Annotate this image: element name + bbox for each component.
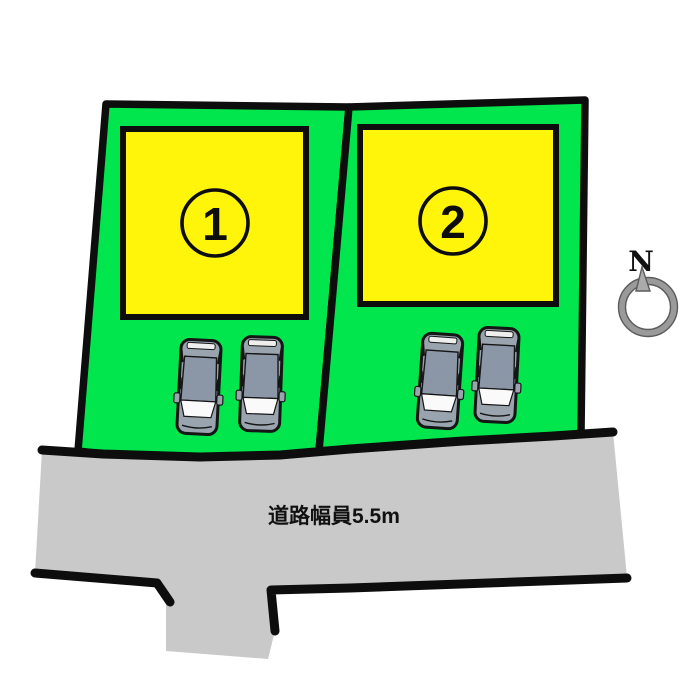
parcel-1-number: 1 (202, 198, 228, 250)
road-bottom-right-edge (271, 578, 627, 631)
site-plan-drawing: 1 2 道路幅員5.5m N (0, 0, 700, 700)
north-compass-icon: N (619, 245, 678, 337)
car-icon (470, 327, 524, 423)
car-icon (235, 336, 287, 432)
site-plan-canvas: 1 2 道路幅員5.5m N (0, 0, 700, 700)
road-area (35, 432, 627, 659)
road-width-label: 道路幅員5.5m (268, 504, 400, 528)
parcel-2-number: 2 (440, 196, 466, 248)
car-icon (172, 339, 226, 435)
